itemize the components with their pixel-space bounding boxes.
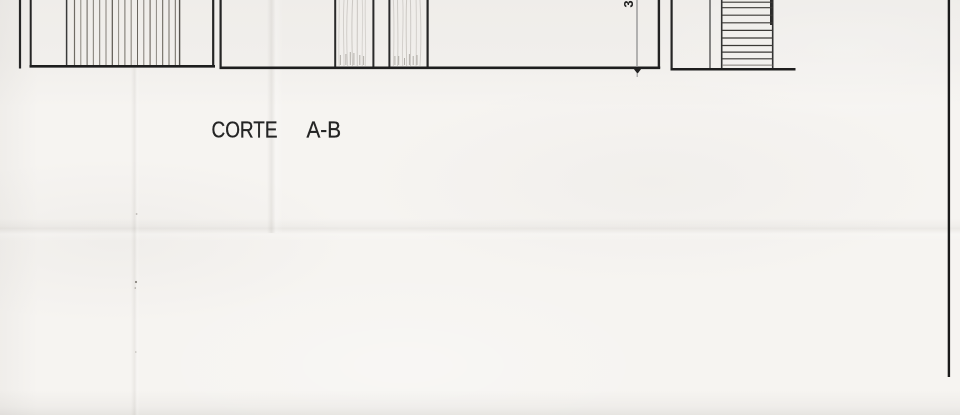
svg-text:A-B: A-B: [307, 117, 342, 143]
svg-text:3: 3: [621, 0, 636, 7]
svg-text:CORTE: CORTE: [212, 117, 278, 143]
